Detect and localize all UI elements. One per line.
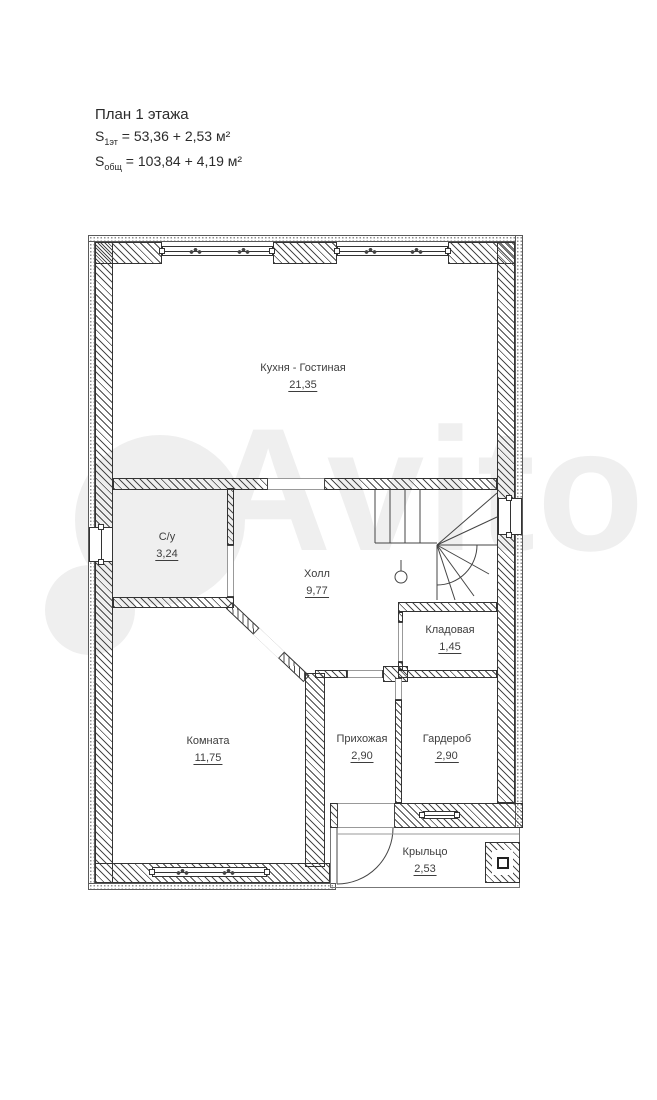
- room-area: 2,90: [350, 750, 373, 763]
- room-area: 3,24: [155, 548, 178, 561]
- room-area: 21,35: [288, 379, 318, 392]
- area-formula-floor1: S1эт = 53,36 + 2,53 м²: [95, 127, 242, 152]
- room-name: С/у: [155, 529, 178, 546]
- room-name: Комната: [186, 733, 229, 750]
- room-area: 2,90: [435, 750, 458, 763]
- s1-subscript: 1эт: [104, 137, 118, 147]
- stairs-and-doors-drawing: [85, 230, 525, 895]
- room-name: Крыльцо: [403, 844, 448, 861]
- room-area: 9,77: [305, 585, 328, 598]
- s2-subscript: общ: [104, 162, 122, 172]
- room-label-porch: Крыльцо 2,53: [403, 844, 448, 878]
- floor-plan-page: План 1 этажа S1эт = 53,36 + 2,53 м² Sобщ…: [0, 0, 657, 1100]
- room-label-entryhall: Прихожая 2,90: [337, 731, 388, 765]
- room-label-hall: Холл 9,77: [304, 566, 330, 600]
- room-label-wardrobe: Гардероб 2,90: [423, 731, 471, 765]
- room-name: Холл: [304, 566, 330, 583]
- room-area: 11,75: [194, 752, 223, 765]
- s2-value: = 103,84 + 4,19 м²: [122, 153, 242, 169]
- room-name: Гардероб: [423, 731, 471, 748]
- s1-value: = 53,36 + 2,53 м²: [118, 128, 230, 144]
- room-label-storage: Кладовая 1,45: [425, 622, 474, 656]
- floor-plan: Кухня - Гостиная 21,35 С/у 3,24 Холл 9,7…: [85, 230, 525, 895]
- room-area: 2,53: [413, 863, 436, 876]
- room-name: Кладовая: [425, 622, 474, 639]
- area-formula-total: Sобщ = 103,84 + 4,19 м²: [95, 152, 242, 177]
- room-label-room: Комната 11,75: [186, 733, 229, 767]
- room-label-kitchen-living: Кухня - Гостиная 21,35: [260, 360, 345, 394]
- room-name: Прихожая: [337, 731, 388, 748]
- room-label-bathroom: С/у 3,24: [155, 529, 178, 563]
- title-block: План 1 этажа S1эт = 53,36 + 2,53 м² Sобщ…: [95, 106, 242, 177]
- room-name: Кухня - Гостиная: [260, 360, 345, 377]
- s1-symbol: S: [95, 128, 104, 144]
- plan-title: План 1 этажа: [95, 106, 242, 123]
- room-area: 1,45: [438, 641, 461, 654]
- s2-symbol: S: [95, 153, 104, 169]
